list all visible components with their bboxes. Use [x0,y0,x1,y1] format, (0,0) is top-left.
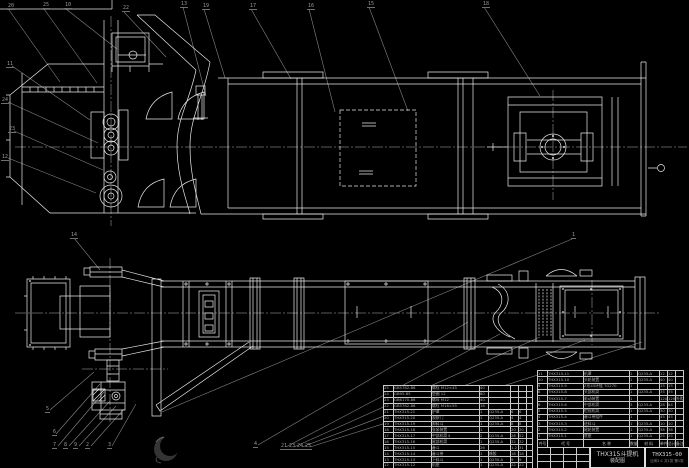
crescent-mark [154,436,180,463]
callout-label: 8 [63,443,68,449]
callout-label: 15 [367,2,375,8]
callout-label: 2 [85,443,90,449]
table-row [538,448,590,455]
title-block-name: THX315斗提机 装配图 [590,447,645,468]
drawing-title: THX315斗提机 [597,451,639,458]
drawing-subtitle: 装配图 [610,458,625,464]
callout-label: 18 [482,2,490,8]
bom-cell: Q235-A [489,462,511,468]
bom-cell: 22 [511,462,519,468]
bom-right-table: 11THX315-11机罩1Q235-A121210THX315-10头轮装置1… [537,370,684,440]
callout-label: 25 [42,3,50,9]
callout-label: 25 [304,444,312,450]
callout-label: 11 [6,62,14,68]
callout-label: 3 [107,443,112,449]
callout-label: 6 [52,430,57,436]
bom-cell: THX315-12 [394,462,432,468]
drawing-number: THX315-00 [652,451,682,459]
cad-drawing-canvas: 2025102213191716151811242312141567892342… [0,0,689,468]
callout-label: 16 [307,4,315,10]
callout-label: 4 [253,442,258,448]
side-view [0,0,665,219]
callout-label: 24 [1,98,9,104]
bom-cell [527,462,533,468]
bom-cell: 机座 [432,462,480,468]
callout-label: 21 [280,444,288,450]
callout-label: 12 [1,155,9,161]
sheet-info: 比例1:1 共1张 第1张 [650,459,683,464]
callout-label: 14 [70,233,78,239]
table-row [538,455,590,462]
callout-label: 13 [180,2,188,8]
callout-label: 20 [7,4,15,10]
title-block-number: THX315-00 比例1:1 共1张 第1张 [645,447,689,468]
callout-label: 22 [122,6,130,12]
signature-grid [537,447,590,468]
bom-left-table: 25GB5782-86螺栓 M12×454024GB95-85垫圈 128023… [383,385,533,468]
callout-label: 23 [288,444,296,450]
callout-label: 7 [52,443,57,449]
callout-label: 5 [45,407,50,413]
table-row: 12THX315-12机座1Q235-A2222 [384,462,533,468]
callout-label: 17 [249,4,257,10]
callout-label: 24 [296,444,304,450]
bom-cell: 12 [384,462,394,468]
bom-cell: 22 [519,462,527,468]
callout-label: 9 [73,443,78,449]
centerlines [15,16,687,424]
callout-label: 10 [64,3,72,9]
table-row [538,462,590,468]
callout-label: 1 [571,233,576,239]
callout-label: 19 [202,4,210,10]
bom-cell: 1 [480,462,489,468]
callout-label: 23 [8,127,16,133]
